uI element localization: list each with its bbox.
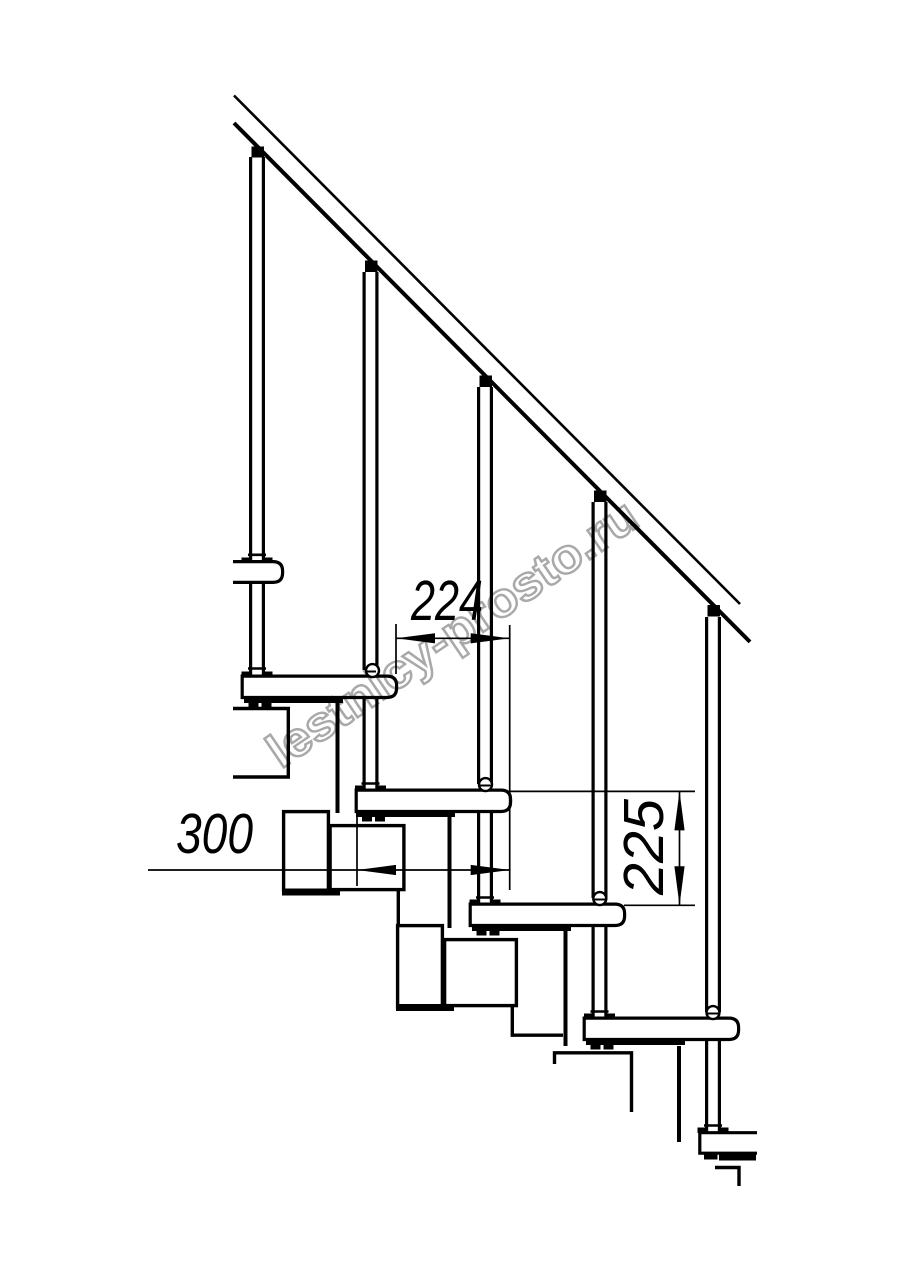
svg-text:224: 224 (410, 569, 483, 633)
svg-text:225: 225 (612, 799, 676, 896)
svg-text:300: 300 (176, 802, 253, 866)
